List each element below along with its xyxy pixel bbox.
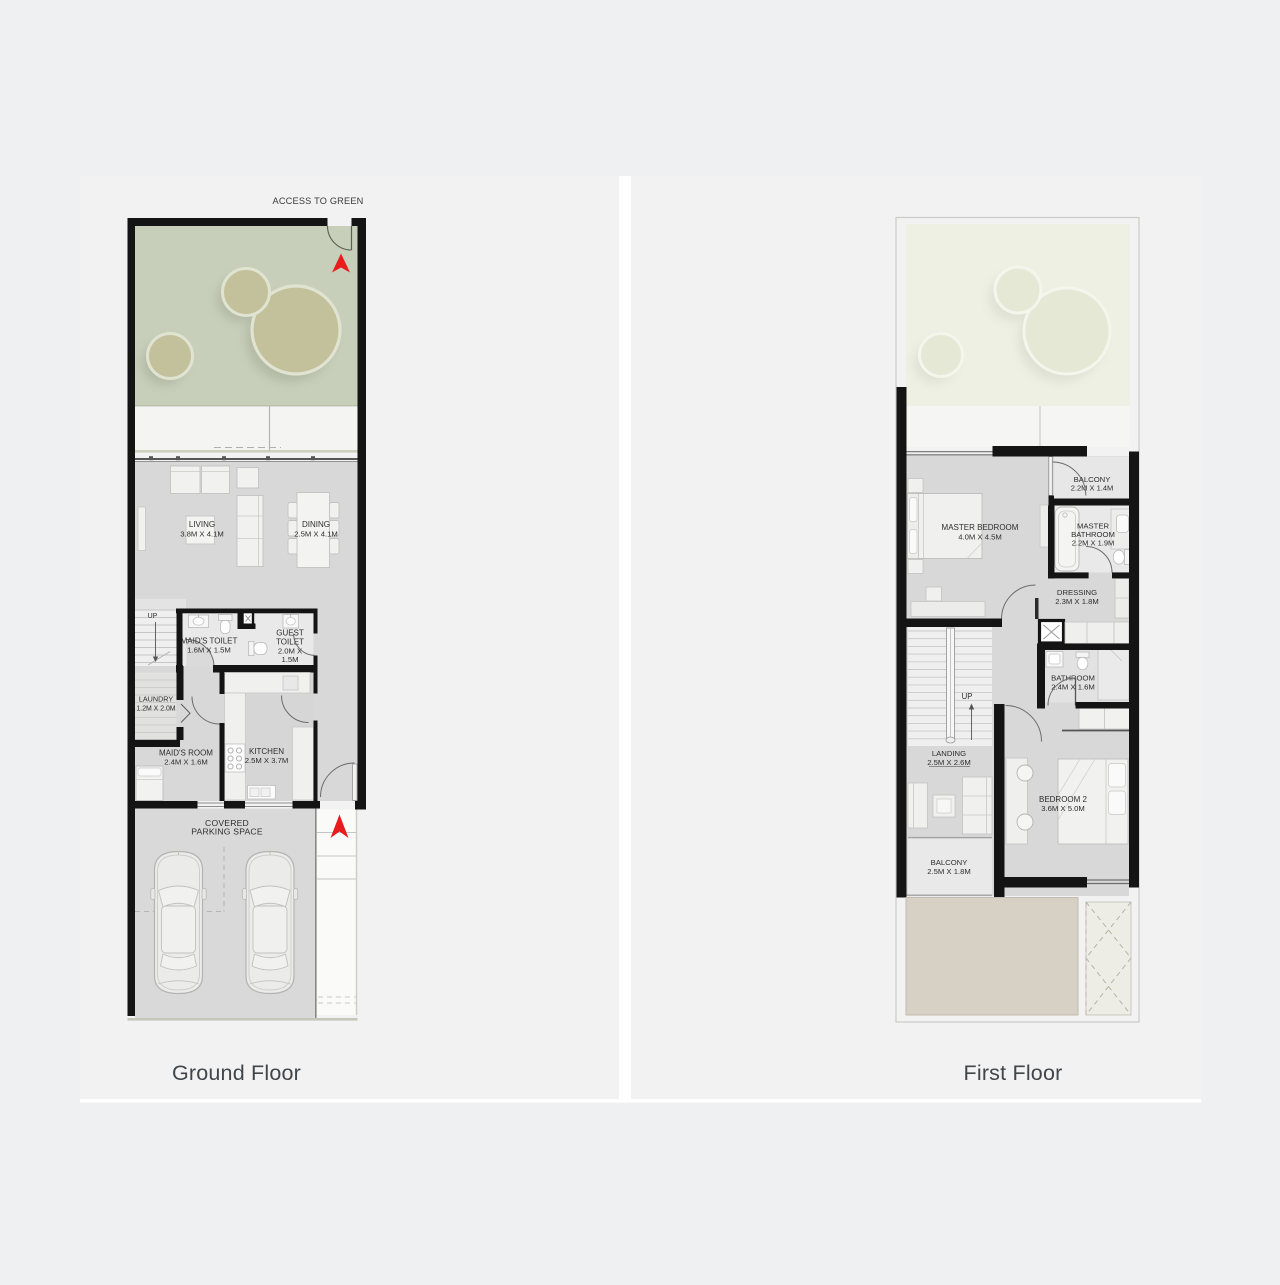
svg-text:2.2M X 1.4M: 2.2M X 1.4M	[1071, 484, 1114, 493]
svg-text:DINING: DINING	[302, 520, 330, 529]
svg-text:UP: UP	[962, 692, 973, 701]
svg-text:MAID'S TOILET: MAID'S TOILET	[181, 637, 238, 646]
svg-text:BALCONY: BALCONY	[931, 858, 968, 867]
svg-text:2.5M X 3.7M: 2.5M X 3.7M	[245, 756, 289, 765]
svg-text:1.6M X 1.5M: 1.6M X 1.5M	[187, 646, 231, 655]
svg-text:4.0M X 4.5M: 4.0M X 4.5M	[958, 533, 1002, 542]
svg-text:2.4M X 1.6M: 2.4M X 1.6M	[164, 758, 208, 767]
svg-text:2.5M X 4.1M: 2.5M X 4.1M	[294, 530, 338, 539]
svg-text:LANDING: LANDING	[932, 749, 966, 758]
svg-text:3.6M X 5.0M: 3.6M X 5.0M	[1041, 804, 1085, 813]
svg-text:LAUNDRY: LAUNDRY	[139, 695, 173, 704]
svg-text:DRESSING: DRESSING	[1057, 588, 1097, 597]
svg-text:2.3M X 1.8M: 2.3M X 1.8M	[1055, 597, 1099, 606]
svg-text:3.8M X 4.1M: 3.8M X 4.1M	[180, 530, 224, 539]
svg-text:MAID'S ROOM: MAID'S ROOM	[159, 749, 213, 758]
svg-text:BEDROOM 2: BEDROOM 2	[1039, 795, 1088, 804]
svg-text:Ground Floor: Ground Floor	[172, 1061, 301, 1085]
svg-text:1.2M X 2.0M: 1.2M X 2.0M	[136, 706, 175, 713]
svg-text:LIVING: LIVING	[189, 520, 215, 529]
svg-text:2.2M X 1.9M: 2.2M X 1.9M	[1072, 539, 1115, 548]
svg-text:KITCHEN: KITCHEN	[249, 747, 284, 756]
svg-text:UP: UP	[148, 613, 158, 620]
svg-text:1.5M: 1.5M	[281, 655, 298, 664]
svg-text:First Floor: First Floor	[964, 1061, 1063, 1085]
svg-text:GUEST: GUEST	[276, 629, 304, 638]
svg-text:PARKING SPACE: PARKING SPACE	[191, 827, 263, 837]
svg-text:MASTER BEDROOM: MASTER BEDROOM	[942, 523, 1019, 532]
svg-text:TOILET: TOILET	[276, 638, 304, 647]
svg-text:ACCESS TO GREEN: ACCESS TO GREEN	[273, 196, 364, 206]
svg-text:2.5M X 1.8M: 2.5M X 1.8M	[927, 867, 971, 876]
svg-text:2.5M X 2.6M: 2.5M X 2.6M	[927, 758, 971, 767]
